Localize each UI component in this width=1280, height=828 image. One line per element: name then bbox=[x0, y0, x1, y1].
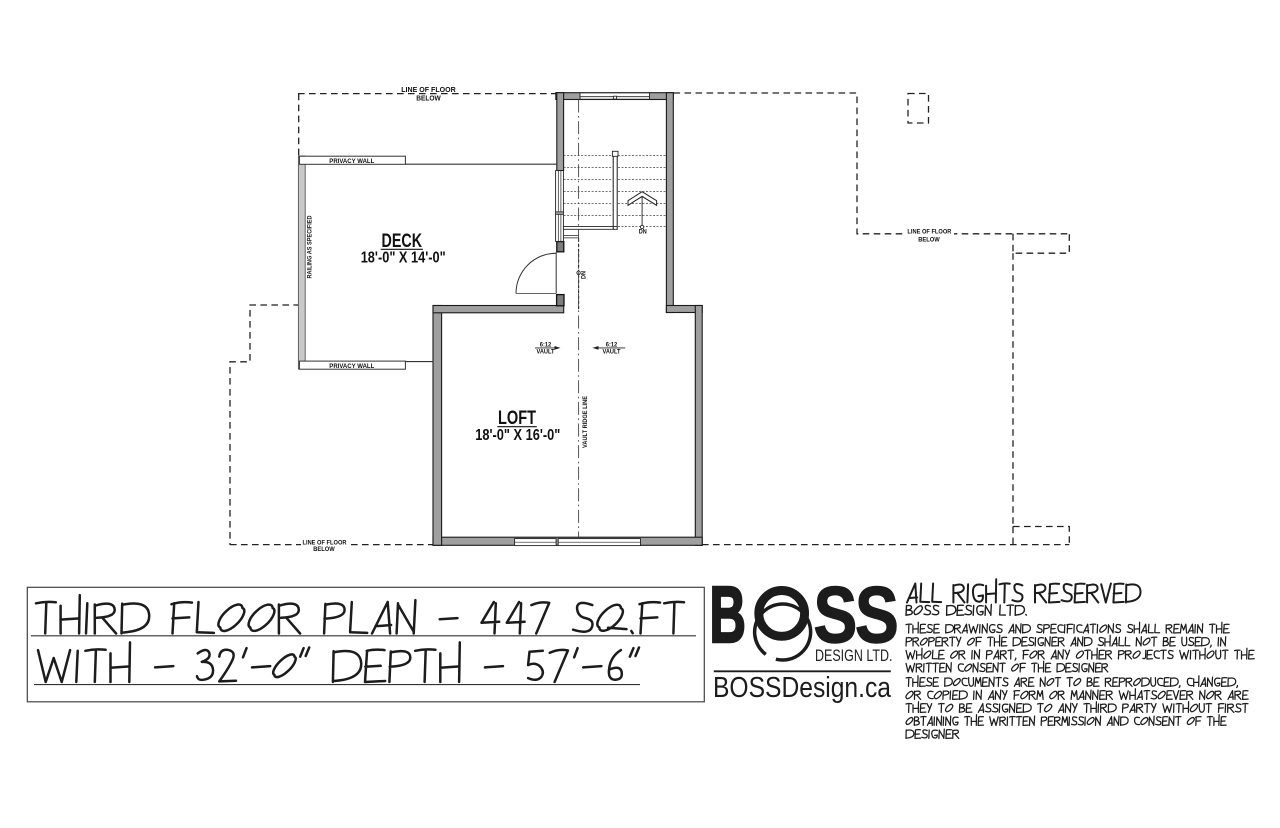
svg-text:LINE OF FLOOR: LINE OF FLOOR bbox=[907, 229, 951, 236]
svg-text:PRIVACY WALL: PRIVACY WALL bbox=[329, 158, 374, 165]
svg-text:LOFT: LOFT bbox=[498, 407, 536, 429]
svg-text:VAULT: VAULT bbox=[603, 350, 621, 356]
svg-text:VAULT: VAULT bbox=[537, 350, 555, 356]
svg-text:B: B bbox=[710, 570, 746, 660]
svg-text:BELOW: BELOW bbox=[918, 236, 940, 243]
svg-text:VAULT RIDGE LINE: VAULT RIDGE LINE bbox=[583, 396, 589, 448]
svg-text:6:12: 6:12 bbox=[540, 342, 552, 348]
svg-text:BELOW: BELOW bbox=[416, 94, 441, 103]
svg-text:DESIGN LTD.: DESIGN LTD. bbox=[815, 647, 893, 665]
svg-text:DN: DN bbox=[580, 271, 587, 279]
svg-text:RAILING AS SPECIFIED: RAILING AS SPECIFIED bbox=[307, 215, 314, 278]
svg-text:BOSSDesign.ca: BOSSDesign.ca bbox=[713, 672, 891, 704]
svg-text:DN: DN bbox=[639, 229, 647, 236]
svg-text:18'-0" X 16'-0": 18'-0" X 16'-0" bbox=[475, 427, 560, 444]
svg-text:PRIVACY WALL: PRIVACY WALL bbox=[329, 363, 374, 370]
svg-text:BELOW: BELOW bbox=[313, 546, 335, 553]
svg-text:6:12: 6:12 bbox=[606, 342, 618, 348]
svg-text:18'-0" X 14'-0": 18'-0" X 14'-0" bbox=[361, 249, 446, 266]
